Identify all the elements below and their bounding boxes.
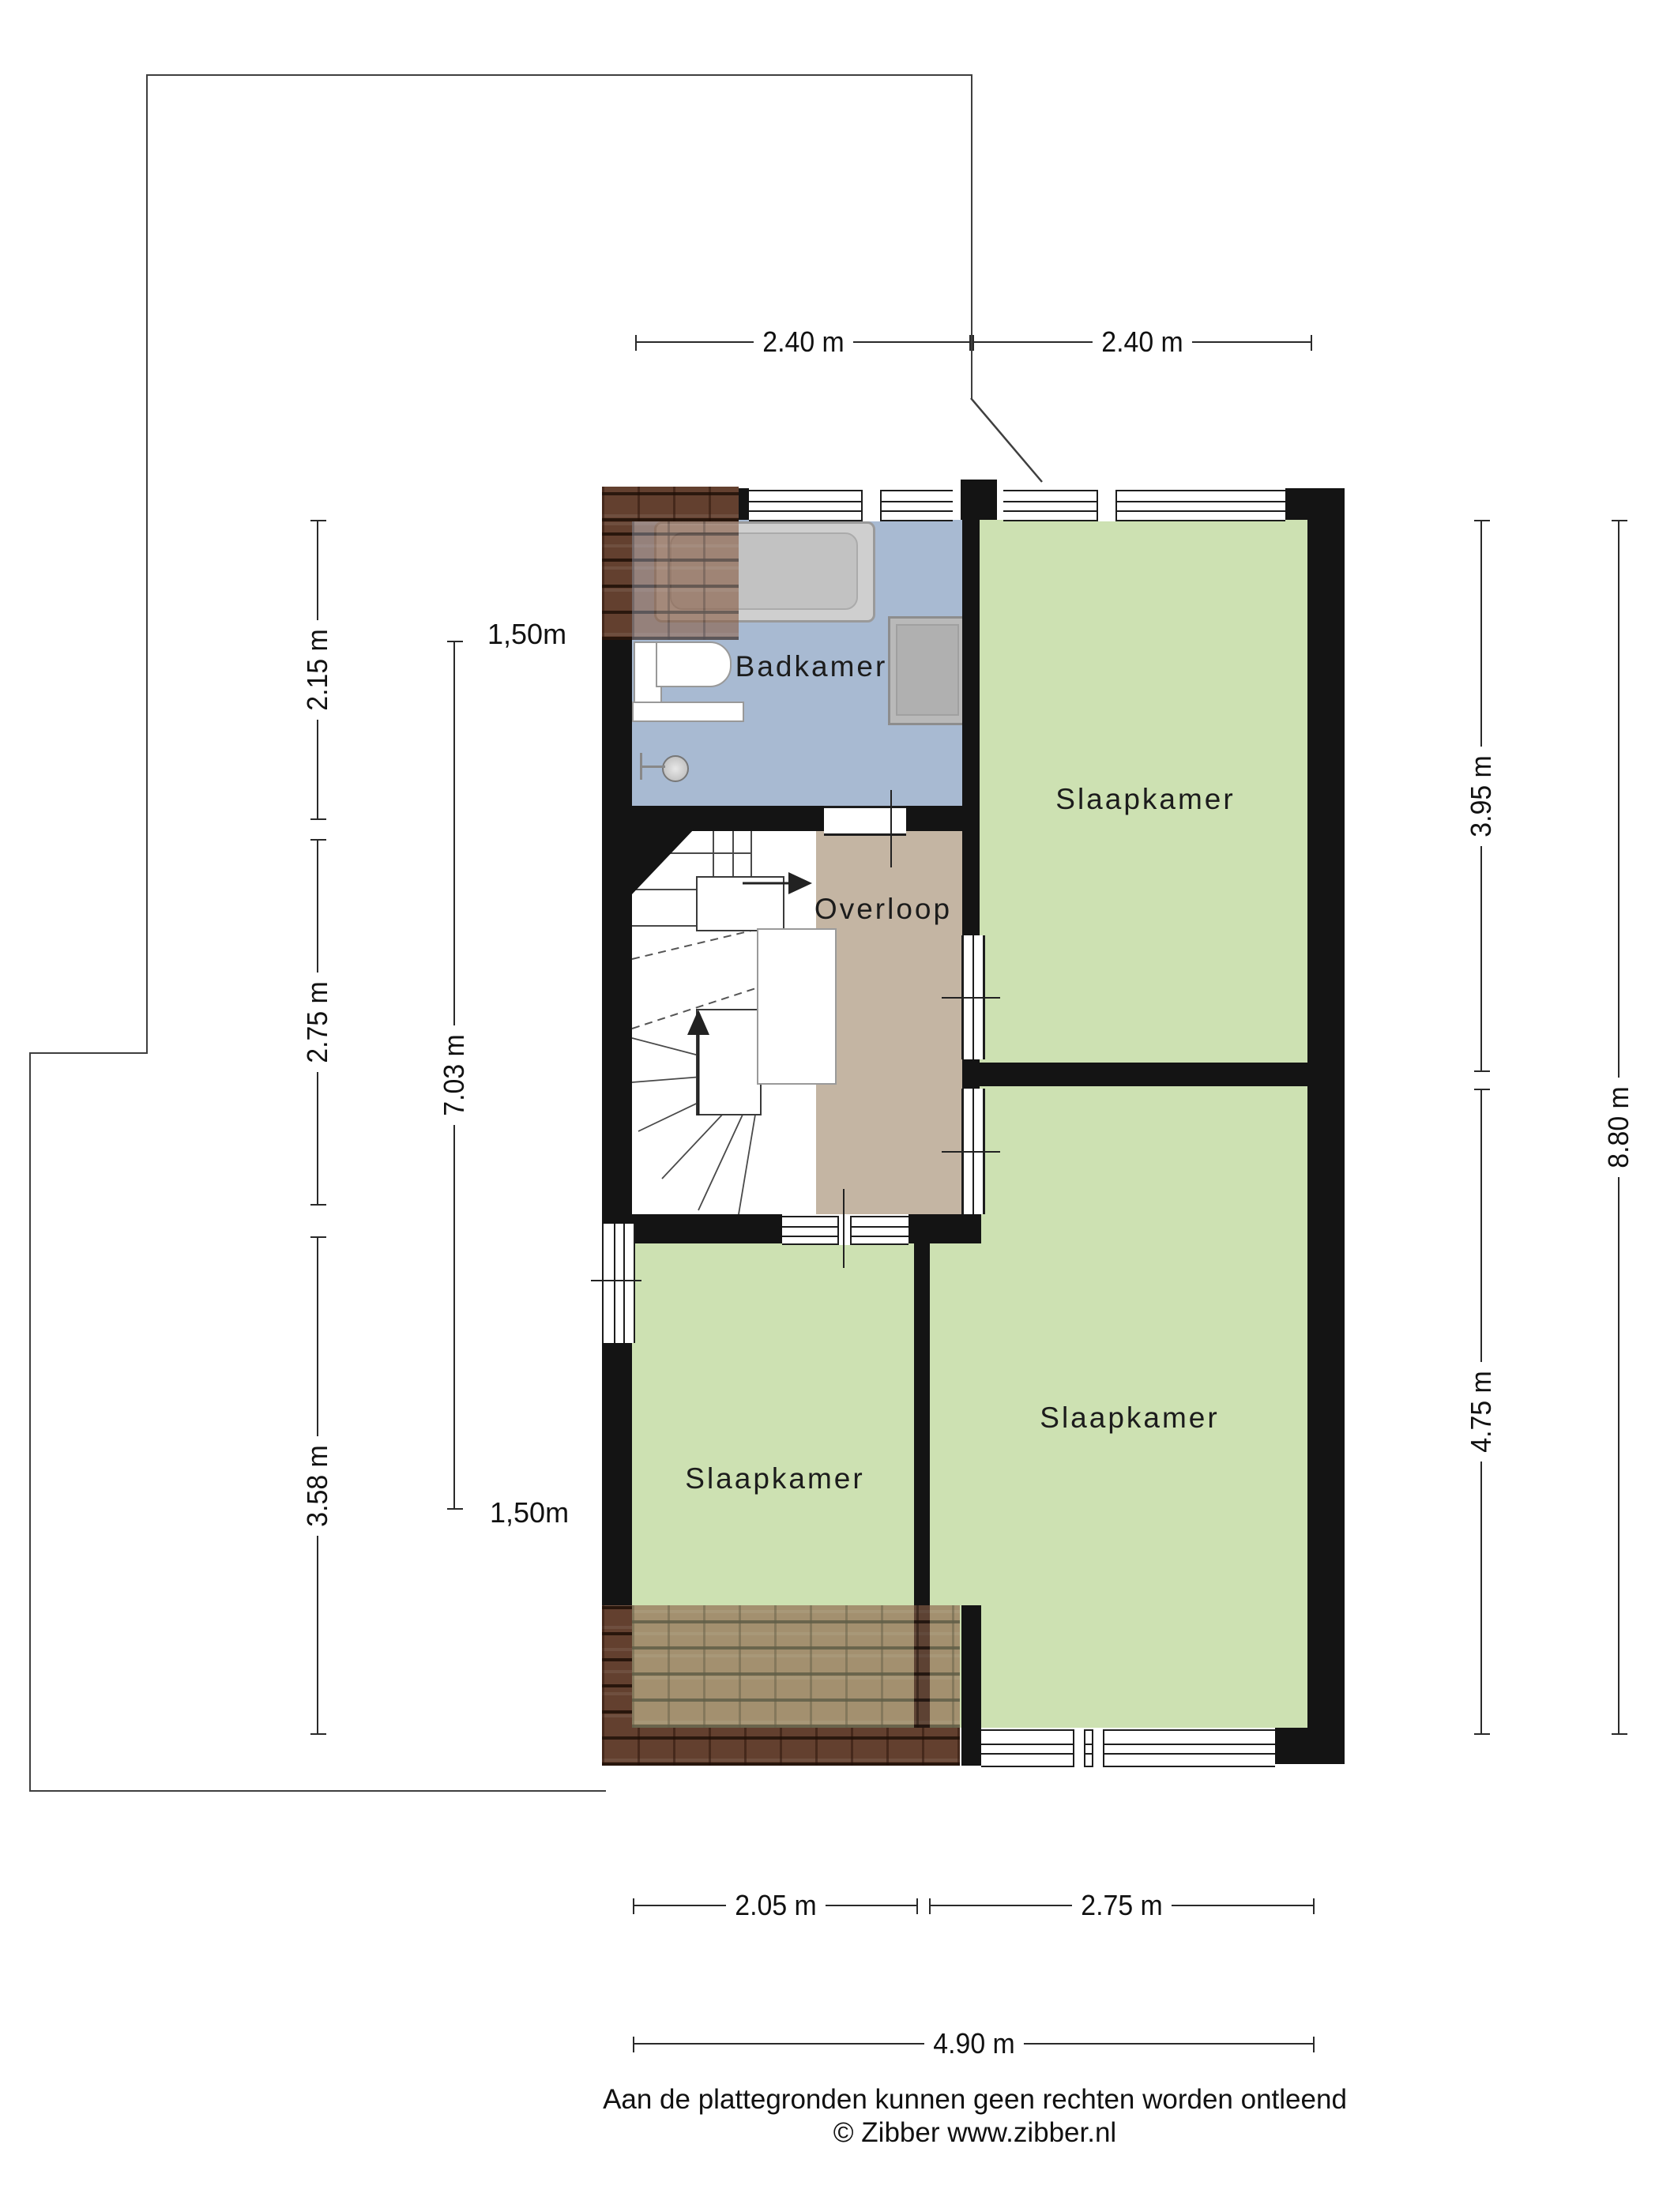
groundfloor-outline-step (29, 1052, 148, 1054)
wall-landing-south-left (630, 1214, 782, 1243)
groundfloor-outline-left-upper (146, 74, 148, 1054)
dim-left-2: 2.75 m (317, 840, 318, 1205)
dim-right-total-label: 8.80 m (1602, 1078, 1635, 1177)
groundfloor-outline-top (146, 74, 972, 76)
footer-credit: © Zibber www.zibber.nl (602, 2117, 1348, 2149)
roof-tiles-top-overlay (632, 521, 739, 640)
wall-bathroom-south-right (906, 806, 964, 831)
dim-top-left: 2.40 m (636, 341, 970, 343)
window-left-bedroom (602, 1224, 635, 1343)
wall-bedroom-divider-east (980, 1063, 1307, 1086)
shower-arm (641, 766, 665, 768)
dim-top-left-label: 2.40 m (753, 325, 852, 359)
roof-tiles-top-wall (602, 521, 632, 640)
door-slaapkamer-top-tick (942, 997, 1000, 999)
window-landing-south (782, 1216, 908, 1245)
toilet-bowl (656, 641, 732, 687)
bathroom-cabinet-door (896, 624, 959, 716)
window-mullion (1092, 1729, 1104, 1767)
window-top-bathroom (749, 490, 953, 521)
roof-tiles-bottom-overlay (632, 1605, 960, 1728)
roof-tiles-top-outer (602, 487, 739, 521)
groundfloor-outline-bottom (29, 1790, 606, 1792)
wall-landing-east-middle (962, 1059, 980, 1089)
floorplan-canvas: Badkamer Overloop Slaapkamer Slaapkamer … (0, 0, 1659, 2212)
window-mullion (1097, 490, 1117, 521)
dim-bottom-left-label: 2.05 m (725, 1889, 825, 1922)
wall-right (1307, 488, 1345, 1764)
label-slaapkamer-top: Slaapkamer (1055, 783, 1235, 816)
wall-bathroom-south-left (632, 806, 824, 831)
shower-valve (640, 753, 642, 780)
wall-bottom-pillar (961, 1605, 981, 1766)
dim-left-total-label: 7.03 m (438, 1025, 471, 1125)
stairwell-void (757, 928, 837, 1085)
dim-right-2: 4.75 m (1480, 1089, 1482, 1734)
dim-left-total: 7.03 m (453, 641, 455, 1509)
room-overloop (816, 831, 962, 1214)
label-slaapkamer-right: Slaapkamer (1040, 1401, 1219, 1435)
window-mullion (861, 490, 882, 521)
dim-left-3-label: 3.58 m (301, 1435, 334, 1535)
groundfloor-outline-left-lower (29, 1052, 31, 1792)
dim-right-total: 8.80 m (1618, 521, 1619, 1734)
door-slaapkamer-bottom-tick (942, 1151, 1000, 1153)
window-bottom-bedroom (981, 1729, 1275, 1767)
label-badkamer: Badkamer (735, 650, 888, 683)
window-mullion (837, 1216, 852, 1245)
dim-left-2-label: 2.75 m (301, 972, 334, 1072)
dim-bottom-left: 2.05 m (634, 1905, 917, 1906)
window-mullion (1073, 1729, 1085, 1767)
dim-right-1-label: 3.95 m (1465, 746, 1498, 845)
wall-top-middle-pillar (961, 480, 997, 520)
door-badkamer (824, 806, 906, 836)
dim-bottom-right: 2.75 m (930, 1905, 1314, 1906)
window-landing-tick (843, 1189, 845, 1268)
dim-top-right: 2.40 m (973, 341, 1311, 343)
dim-left-3: 3.58 m (317, 1237, 318, 1734)
dimension-leader-vertical (971, 74, 972, 400)
dim-bottom-right-label: 2.75 m (1072, 1889, 1172, 1922)
shower-head (662, 755, 689, 782)
dim-right-2-label: 4.75 m (1465, 1362, 1498, 1461)
dim-right-1: 3.95 m (1480, 521, 1482, 1071)
window-left-tick (591, 1280, 641, 1281)
dim-bottom-total-label: 4.90 m (924, 2027, 1023, 2060)
bathroom-shelf (632, 702, 744, 722)
wall-landing-east-upper (962, 520, 980, 935)
headroom-label-top: 1,50m (487, 618, 566, 651)
wall-landing-south-right (908, 1214, 981, 1243)
label-overloop: Overloop (814, 893, 952, 926)
wall-left-lower (602, 1343, 632, 1610)
footer-disclaimer: Aan de plattegronden kunnen geen rechten… (602, 2084, 1348, 2116)
dim-left-1: 2.15 m (317, 521, 318, 819)
dim-top-right-label: 2.40 m (1093, 325, 1192, 359)
door-badkamer-tick (890, 790, 892, 867)
label-slaapkamer-left: Slaapkamer (685, 1462, 864, 1495)
dim-left-1-label: 2.15 m (301, 620, 334, 720)
roof-tiles-bottom-outer (602, 1728, 960, 1766)
dimension-leader-diagonal (968, 395, 1047, 486)
window-top-bedroom (1003, 490, 1285, 521)
dim-bottom-total: 4.90 m (634, 2043, 1314, 2045)
wall-bottom-right-corner (1275, 1728, 1345, 1764)
headroom-label-bottom: 1,50m (490, 1496, 569, 1529)
